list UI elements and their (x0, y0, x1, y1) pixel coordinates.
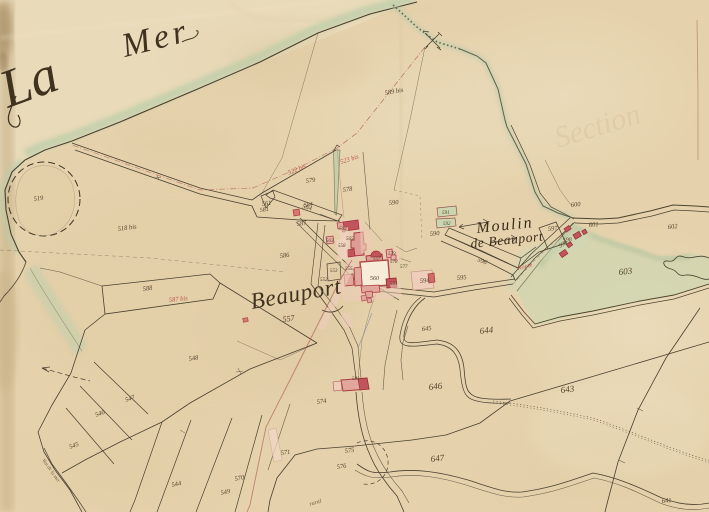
svg-text:641: 641 (661, 497, 671, 505)
svg-text:552: 552 (320, 278, 328, 283)
svg-text:555: 555 (345, 267, 353, 272)
svg-text:600: 600 (570, 201, 581, 209)
svg-text:551: 551 (390, 282, 398, 287)
svg-text:578: 578 (342, 186, 353, 194)
svg-text:579: 579 (305, 177, 316, 185)
svg-text:553: 553 (330, 269, 338, 274)
svg-text:590: 590 (429, 230, 440, 238)
svg-text:645: 645 (421, 325, 432, 333)
svg-text:563: 563 (326, 239, 334, 244)
svg-text:591: 591 (442, 211, 450, 216)
svg-text:587: 587 (296, 220, 307, 228)
svg-text:588: 588 (142, 285, 153, 293)
svg-text:586: 586 (279, 252, 290, 260)
svg-text:581: 581 (352, 377, 360, 382)
svg-text:577: 577 (400, 265, 408, 270)
svg-text:602: 602 (667, 223, 678, 231)
svg-text:590: 590 (388, 199, 399, 207)
svg-text:595: 595 (456, 274, 467, 282)
svg-text:576: 576 (336, 463, 347, 471)
svg-text:581: 581 (259, 207, 269, 214)
svg-text:594: 594 (419, 277, 430, 285)
svg-text:601: 601 (588, 221, 598, 229)
svg-text:562: 562 (339, 227, 347, 232)
svg-text:578: 578 (390, 260, 398, 265)
svg-text:558: 558 (338, 244, 346, 249)
svg-text:584: 584 (303, 201, 313, 209)
svg-text:560: 560 (370, 276, 379, 282)
svg-text:575: 575 (344, 447, 355, 455)
svg-text:592: 592 (443, 222, 451, 227)
svg-text:646: 646 (428, 381, 443, 392)
svg-text:603: 603 (618, 266, 633, 277)
svg-text:644: 644 (479, 325, 494, 336)
svg-text:597: 597 (547, 225, 558, 233)
svg-text:571: 571 (280, 449, 291, 457)
svg-text:565: 565 (346, 237, 354, 242)
svg-text:557: 557 (373, 257, 381, 262)
svg-text:647: 647 (430, 453, 445, 464)
svg-text:557: 557 (282, 313, 296, 324)
svg-text:579: 579 (388, 252, 396, 257)
svg-text:643: 643 (560, 384, 575, 395)
svg-text:574: 574 (316, 398, 327, 406)
svg-text:519: 519 (33, 195, 44, 203)
